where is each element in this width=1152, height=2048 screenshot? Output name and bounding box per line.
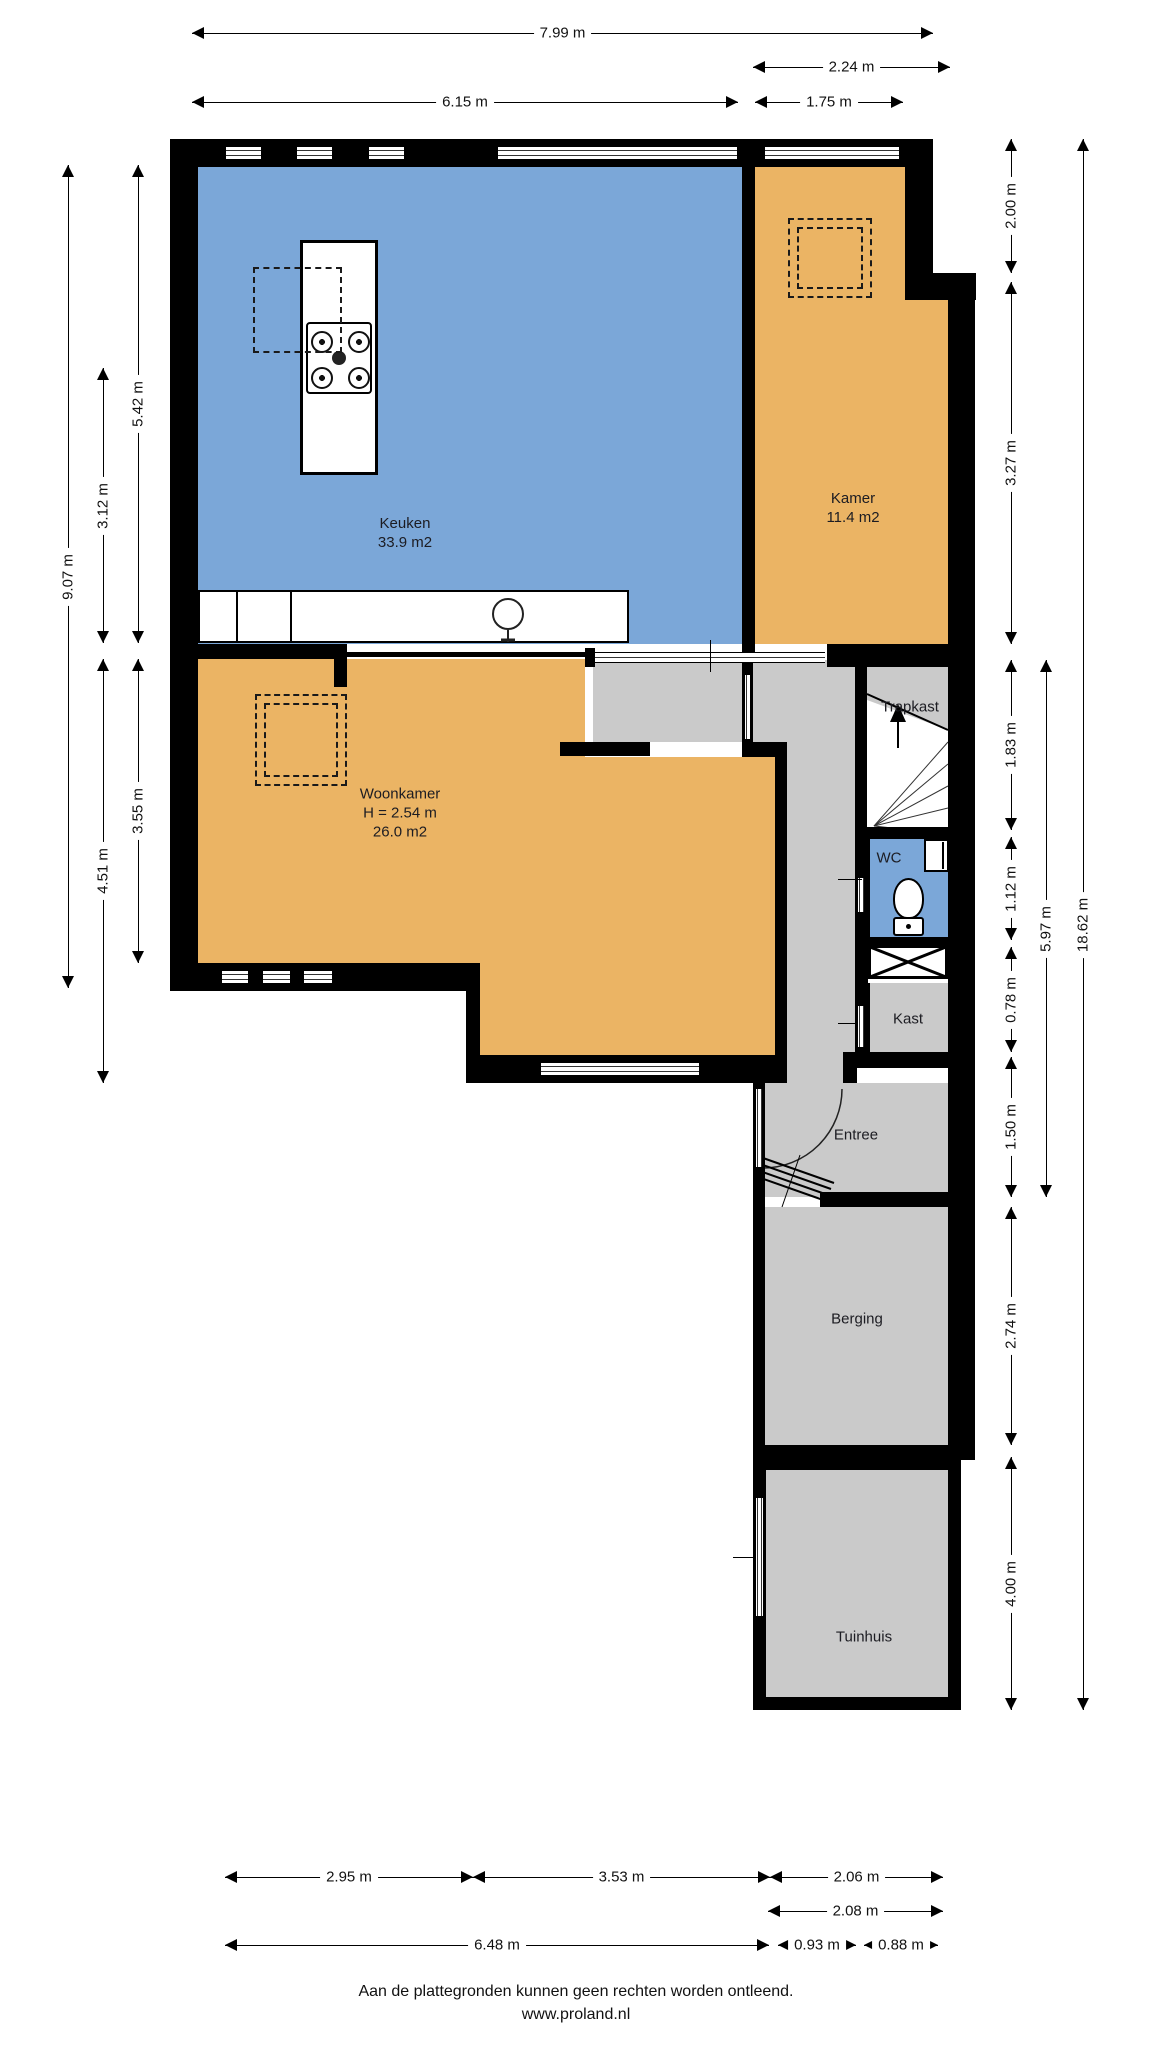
dimension-arrow-icon <box>1005 261 1017 273</box>
dimension-arrow-icon <box>1077 139 1089 151</box>
dim-right-078: 0.78 m <box>1011 947 1012 1052</box>
wall-segment <box>742 139 755 660</box>
window-icon <box>764 146 900 160</box>
dimension-arrow-icon <box>1005 660 1017 672</box>
dimension-arrow-icon <box>1005 1433 1017 1445</box>
dimension-arrow-icon <box>1005 837 1017 849</box>
window-icon <box>303 970 333 984</box>
dimension-arrow-icon <box>97 659 109 671</box>
dimension-arrow-icon <box>1077 1698 1089 1710</box>
wall-segment <box>347 652 587 657</box>
dimension-arrow-icon <box>461 1871 473 1883</box>
dimension-arrow-icon <box>1005 632 1017 644</box>
dim-left-542-label: 5.42 m <box>130 375 147 433</box>
dimension-arrow-icon <box>931 1905 943 1917</box>
dim-top-224: 2.24 m <box>753 67 950 68</box>
dim-right-400-label: 4.00 m <box>1003 1555 1020 1613</box>
dim-bottom-093-label: 0.93 m <box>788 1937 846 1954</box>
dim-right-150-label: 1.50 m <box>1003 1098 1020 1156</box>
dimension-arrow-icon <box>97 1071 109 1083</box>
dimension-arrow-icon <box>132 659 144 671</box>
dimension-arrow-icon <box>1040 660 1052 672</box>
kamer-label: Kamer11.4 m2 <box>826 489 879 527</box>
dimension-arrow-icon <box>1040 1185 1052 1197</box>
dimension-arrow-icon <box>473 1871 485 1883</box>
dim-right-078-label: 0.78 m <box>1003 971 1020 1029</box>
wall-segment <box>334 651 347 687</box>
dim-right-200-label: 2.00 m <box>1003 177 1020 235</box>
wall-segment <box>843 1052 857 1083</box>
trapkast-label: Trapkast <box>881 698 939 717</box>
floorplan-page: Keuken33.9 m2Kamer11.4 m2WoonkamerH = 2.… <box>0 0 1152 2048</box>
dimension-arrow-icon <box>938 61 950 73</box>
reference-tick <box>838 1023 857 1024</box>
floorplan-drawing: Keuken33.9 m2Kamer11.4 m2WoonkamerH = 2.… <box>0 0 1152 2048</box>
window-icon <box>262 970 291 984</box>
woonkamer-label: WoonkamerH = 2.54 m26.0 m2 <box>360 785 441 842</box>
door-window-band-icon <box>755 1088 763 1168</box>
dim-bottom-206: 2.06 m <box>770 1877 943 1878</box>
wall-segment <box>855 660 867 830</box>
dim-top-175: 1.75 m <box>755 102 903 103</box>
dim-left-312: 3.12 m <box>103 368 104 643</box>
dim-bottom-088: 0.88 m <box>864 1945 938 1946</box>
window-icon <box>540 1062 700 1076</box>
dimension-arrow-icon <box>1005 139 1017 151</box>
dimension-arrow-icon <box>62 976 74 988</box>
dim-left-312-label: 3.12 m <box>95 477 112 535</box>
dimension-arrow-icon <box>891 96 903 108</box>
dimension-arrow-icon <box>1005 282 1017 294</box>
wall-segment <box>753 1697 961 1710</box>
dimension-arrow-icon <box>1005 818 1017 830</box>
dim-left-907-label: 9.07 m <box>60 548 77 606</box>
dim-top-799: 7.99 m <box>192 33 933 34</box>
dim-left-451: 4.51 m <box>103 659 104 1083</box>
dim-right-1862-label: 18.62 m <box>1075 891 1092 957</box>
dim-bottom-208: 2.08 m <box>768 1911 943 1912</box>
kamer-dashed-outline-inner <box>797 227 863 289</box>
dim-right-597: 5.97 m <box>1046 660 1047 1197</box>
dimension-arrow-icon <box>1005 928 1017 940</box>
dim-left-542: 5.42 m <box>138 165 139 643</box>
dim-right-112-label: 1.12 m <box>1003 860 1020 918</box>
dimension-arrow-icon <box>921 27 933 39</box>
dimension-arrow-icon <box>757 1939 769 1951</box>
dim-top-799-label: 7.99 m <box>534 25 592 42</box>
wall-segment <box>820 1192 948 1207</box>
window-icon <box>296 146 333 160</box>
window-icon <box>221 970 249 984</box>
dim-right-183: 1.83 m <box>1011 660 1012 830</box>
dimension-arrow-icon <box>755 96 767 108</box>
wall-segment <box>855 827 948 839</box>
dim-bottom-353: 3.53 m <box>473 1877 770 1878</box>
dim-right-200: 2.00 m <box>1011 139 1012 273</box>
dim-bottom-206-label: 2.06 m <box>828 1869 886 1886</box>
door-window-band-icon <box>857 1005 865 1048</box>
tuinhuis-label: Tuinhuis <box>836 1628 892 1647</box>
reference-tick <box>733 1557 753 1558</box>
wall-segment <box>560 742 650 756</box>
keuken-dashed-outline <box>253 267 342 353</box>
wall-segment <box>855 945 868 983</box>
window-icon <box>225 146 262 160</box>
entree-label: Entree <box>834 1126 878 1145</box>
wall-segment <box>170 644 347 659</box>
window-icon <box>497 146 738 160</box>
wall-segment <box>753 1168 765 1460</box>
wall-segment <box>948 1457 961 1710</box>
door-window-band-icon <box>857 877 865 913</box>
dimension-arrow-icon <box>768 1905 780 1917</box>
wall-segment <box>585 648 595 667</box>
dim-top-224-label: 2.24 m <box>823 59 881 76</box>
wall-segment <box>170 139 198 991</box>
wall-segment <box>855 937 948 947</box>
wall-segment <box>753 1457 961 1470</box>
dim-left-451-label: 4.51 m <box>95 842 112 900</box>
dimension-arrow-icon <box>1005 1457 1017 1469</box>
wall-segment <box>742 742 787 757</box>
dimension-arrow-icon <box>225 1871 237 1883</box>
dimension-arrow-icon <box>1005 947 1017 959</box>
disclaimer-text: Aan de plattegronden kunnen geen rechten… <box>0 1983 1152 2001</box>
dimension-arrow-icon <box>192 96 204 108</box>
door-window-band-icon <box>744 674 751 740</box>
dimension-arrow-icon <box>931 1871 943 1883</box>
dimension-arrow-icon <box>1005 1207 1017 1219</box>
dim-right-274: 2.74 m <box>1011 1207 1012 1445</box>
dimension-arrow-icon <box>1005 1057 1017 1069</box>
dim-bottom-353-label: 3.53 m <box>593 1869 651 1886</box>
dimension-arrow-icon <box>1005 1185 1017 1197</box>
dimension-arrow-icon <box>726 96 738 108</box>
woonkamer-dashed-outline-inner <box>264 703 338 777</box>
dim-right-327-label: 3.27 m <box>1003 434 1020 492</box>
dim-right-400: 4.00 m <box>1011 1457 1012 1710</box>
dim-bottom-208-label: 2.08 m <box>827 1903 885 1920</box>
dimension-arrow-icon <box>1005 1698 1017 1710</box>
dimension-arrow-icon <box>132 951 144 963</box>
dim-right-597-label: 5.97 m <box>1038 900 1055 958</box>
entree-door-arc <box>763 1089 842 1168</box>
window-icon <box>368 146 405 160</box>
kast-label: Kast <box>893 1010 923 1029</box>
dim-bottom-295: 2.95 m <box>225 1877 473 1878</box>
wc-label: WC <box>877 849 902 868</box>
dim-right-183-label: 1.83 m <box>1003 716 1020 774</box>
dim-bottom-648: 6.48 m <box>225 1945 769 1946</box>
wall-segment <box>948 273 975 1457</box>
wall-segment <box>827 644 948 667</box>
dim-bottom-648-label: 6.48 m <box>468 1937 526 1954</box>
dim-right-150: 1.50 m <box>1011 1057 1012 1197</box>
dimension-arrow-icon <box>132 631 144 643</box>
dimension-arrow-icon <box>225 1939 237 1951</box>
dim-right-274-label: 2.74 m <box>1003 1297 1020 1355</box>
dimension-arrow-icon <box>97 631 109 643</box>
wall-segment <box>843 1052 950 1068</box>
website-link[interactable]: www.proland.nl <box>0 2006 1152 2024</box>
dimension-arrow-icon <box>132 165 144 177</box>
wall-segment <box>905 139 933 279</box>
dimension-arrow-icon <box>192 27 204 39</box>
dim-left-355: 3.55 m <box>138 659 139 963</box>
dimension-arrow-icon <box>1005 1040 1017 1052</box>
wall-segment <box>775 757 787 1083</box>
dim-bottom-088-label: 0.88 m <box>872 1937 930 1954</box>
dim-left-355-label: 3.55 m <box>130 782 147 840</box>
dim-bottom-093: 0.93 m <box>778 1945 856 1946</box>
dimension-arrow-icon <box>62 165 74 177</box>
dim-left-907: 9.07 m <box>68 165 69 988</box>
door-window-band-icon <box>755 1497 764 1617</box>
dim-top-175-label: 1.75 m <box>800 94 858 111</box>
dimension-arrow-icon <box>770 1871 782 1883</box>
reference-tick <box>838 879 862 880</box>
dim-bottom-295-label: 2.95 m <box>320 1869 378 1886</box>
dim-top-615-label: 6.15 m <box>436 94 494 111</box>
dim-right-112: 1.12 m <box>1011 837 1012 940</box>
keuken-label: Keuken33.9 m2 <box>378 514 432 552</box>
reference-tick <box>710 640 711 672</box>
dimension-arrow-icon <box>97 368 109 380</box>
berging-label: Berging <box>831 1310 883 1329</box>
dim-top-615: 6.15 m <box>192 102 738 103</box>
dimension-arrow-icon <box>753 61 765 73</box>
dim-right-327: 3.27 m <box>1011 282 1012 644</box>
dimension-arrow-icon <box>758 1871 770 1883</box>
dim-right-1862: 18.62 m <box>1083 139 1084 1710</box>
